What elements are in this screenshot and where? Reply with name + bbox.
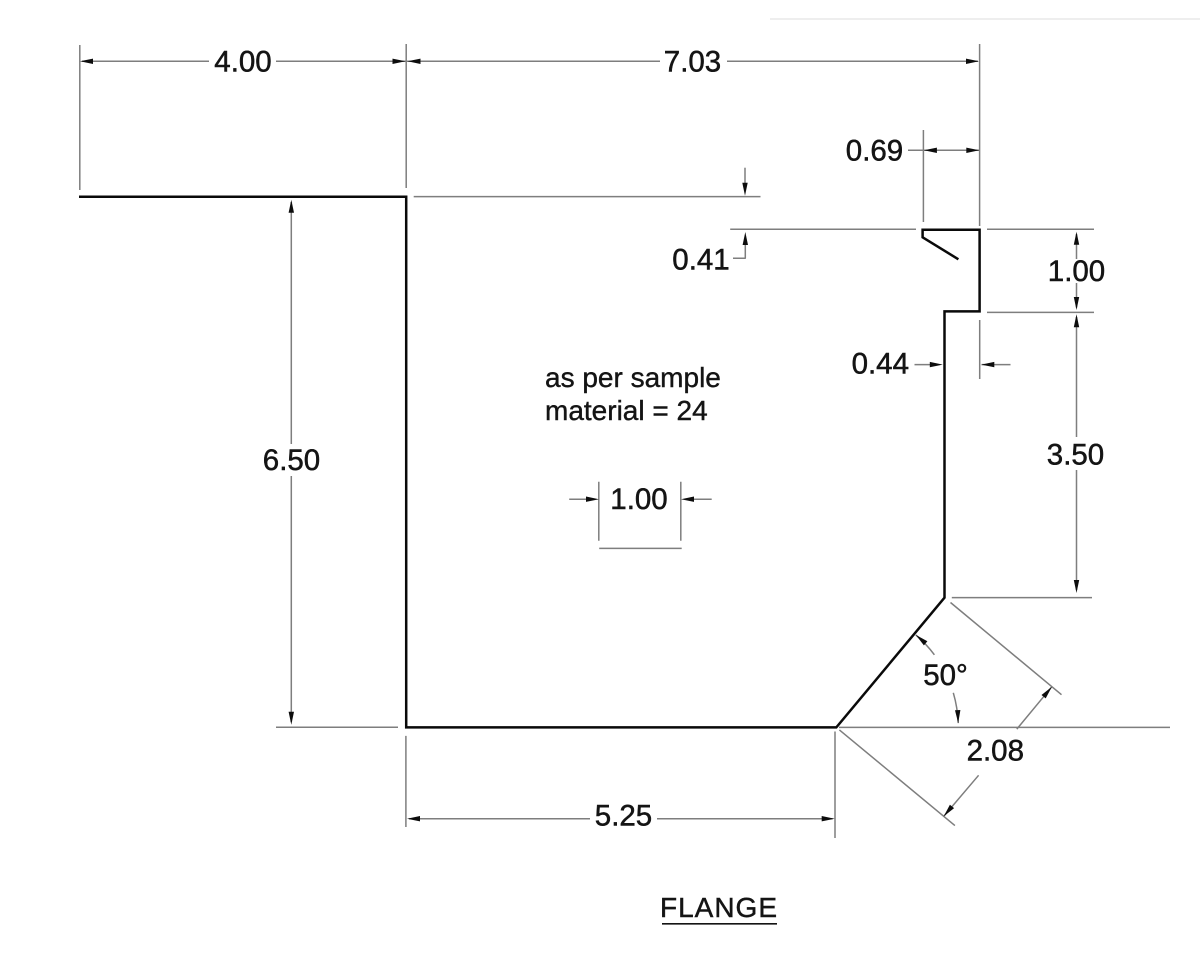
svg-text:0.69: 0.69 [846,134,903,167]
svg-text:4.00: 4.00 [214,46,271,79]
svg-text:2.08: 2.08 [967,735,1024,768]
svg-text:0.44: 0.44 [852,348,909,381]
svg-text:50°: 50° [923,659,968,692]
svg-text:1.00: 1.00 [610,483,667,516]
svg-text:0.41: 0.41 [672,244,729,277]
svg-text:3.50: 3.50 [1047,439,1104,472]
svg-text:7.03: 7.03 [664,46,721,79]
svg-text:material = 24: material = 24 [545,395,708,426]
svg-text:5.25: 5.25 [595,800,652,833]
svg-text:as per sample: as per sample [545,362,721,393]
svg-text:1.00: 1.00 [1048,255,1105,288]
svg-text:FLANGE: FLANGE [660,892,778,923]
svg-text:6.50: 6.50 [263,444,320,477]
